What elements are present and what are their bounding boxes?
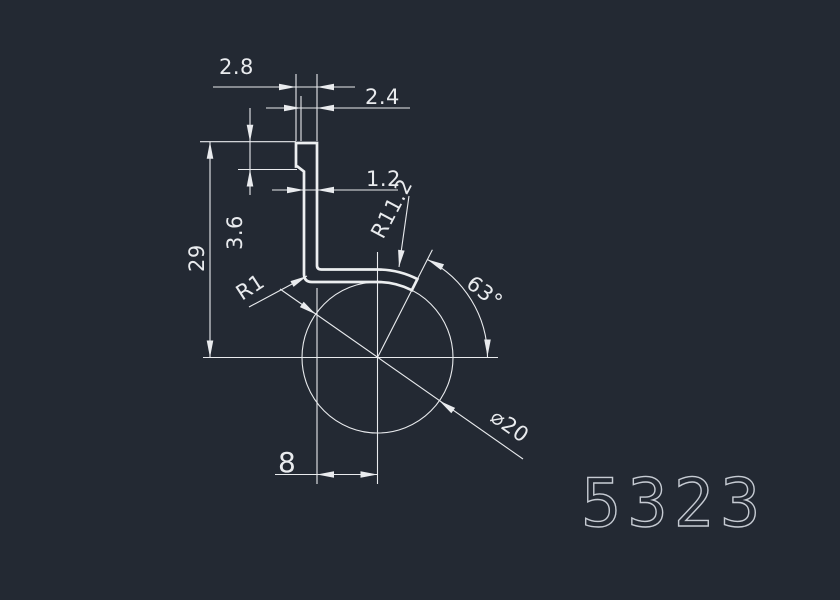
angle-leg-line xyxy=(378,250,433,358)
arrowhead xyxy=(247,170,254,187)
dim-upper-wall-width: 2.4 xyxy=(266,85,410,141)
dim-circle-diameter: ⌀20 xyxy=(280,289,533,459)
dim-end-face-angle-text: 63° xyxy=(462,271,507,314)
part-number: 5323 xyxy=(581,464,766,542)
dim-circle-diameter-text: ⌀20 xyxy=(486,404,533,447)
dim-tab-height-text: 3.6 xyxy=(223,215,247,250)
arrowhead xyxy=(247,125,254,142)
arrowhead xyxy=(426,257,444,271)
dim-wall-thickness: 1.2 xyxy=(272,167,401,193)
arrowhead xyxy=(317,471,334,478)
arrowhead xyxy=(317,84,334,91)
dim-tab-width: 2.8 xyxy=(213,55,355,141)
dim-upper-wall-width-text: 2.4 xyxy=(365,85,400,109)
arrowhead xyxy=(284,105,301,112)
arrowhead xyxy=(317,105,334,112)
dim-overall-height: 29 xyxy=(185,142,213,358)
cad-drawing: ⌀20 63° R11.2 R1 2.8 2.4 xyxy=(0,0,840,600)
dim-horizontal-offset-text: 8 xyxy=(278,446,296,479)
arrowhead xyxy=(279,84,296,91)
arrowhead xyxy=(484,340,491,357)
arrowhead xyxy=(207,341,214,358)
dim-tab-height: 3.6 xyxy=(200,108,297,250)
dim-overall-height-text: 29 xyxy=(185,244,209,272)
dim-wall-thickness-text: 1.2 xyxy=(366,167,401,191)
arrowhead xyxy=(207,142,214,159)
arrowhead xyxy=(287,187,304,194)
arrowhead xyxy=(396,250,405,268)
arrowhead xyxy=(361,471,378,478)
arrowhead xyxy=(317,187,334,194)
dim-horizontal-offset: 8 xyxy=(275,288,378,484)
dim-tab-width-text: 2.8 xyxy=(219,55,254,79)
dim-end-face-angle: 63° xyxy=(378,250,508,358)
